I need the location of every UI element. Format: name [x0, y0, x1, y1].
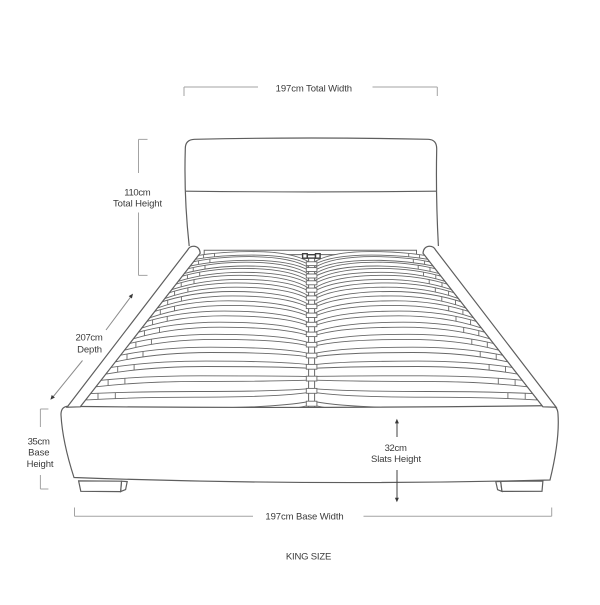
svg-text:KING SIZE: KING SIZE — [286, 552, 331, 563]
svg-text:Slats Height: Slats Height — [371, 454, 421, 465]
svg-text:110cm: 110cm — [124, 187, 150, 198]
svg-text:Base: Base — [28, 448, 49, 459]
svg-text:197cm Total Width: 197cm Total Width — [276, 83, 352, 94]
svg-text:Depth: Depth — [77, 345, 102, 356]
svg-text:35cm: 35cm — [28, 436, 50, 447]
svg-text:32cm: 32cm — [385, 443, 407, 454]
svg-text:Total Height: Total Height — [113, 199, 162, 210]
svg-text:197cm Base Width: 197cm Base Width — [265, 512, 343, 523]
svg-text:Height: Height — [27, 459, 54, 470]
svg-text:207cm: 207cm — [75, 332, 102, 343]
